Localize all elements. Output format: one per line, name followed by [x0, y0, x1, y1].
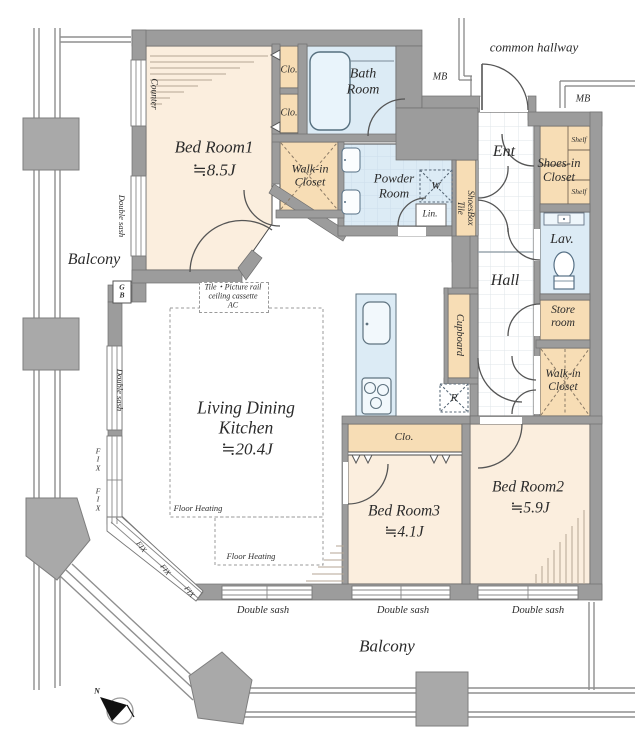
mb-label-1: MB [433, 71, 447, 82]
balcony-left-label: Balcony [68, 251, 120, 269]
shoes-in-closet-label: Shoes-in Closet [537, 156, 580, 184]
gas-box-label: G B [119, 284, 124, 301]
ldk-name-label: Living Dining Kitchen [197, 398, 295, 437]
double-sash-bottom-3: Double sash [512, 605, 564, 617]
linen-label: Lin. [422, 210, 437, 221]
shoesbox-tile-label: ShoesBox Tile [456, 191, 476, 226]
fix-label-2: F I X [96, 487, 101, 512]
clo3-label: Clo. [395, 431, 414, 443]
common-hallway-label: common hallway [490, 41, 578, 56]
counter-label: Counter [148, 78, 159, 109]
clo2-label: Clo. [281, 107, 298, 118]
powder-room-label: Powder Room [374, 171, 414, 200]
double-sash-left-2: Double sash [114, 369, 124, 411]
ceiling-note-label: Tile・Picture rail ceiling cassette AC [205, 284, 262, 311]
double-sash-bottom-2: Double sash [377, 605, 429, 617]
bedroom2-size-label: ≒5.9J [510, 499, 549, 516]
ldk-size-label: ≒20.4J [221, 439, 273, 458]
floor-heating-label-1: Floor Heating [174, 504, 223, 514]
compass [100, 697, 134, 724]
washer-label: W [431, 180, 440, 192]
bedroom2-name-label: Bed Room2 [492, 478, 564, 495]
shelf-label-top: Shelf [572, 136, 587, 144]
bedroom3-name-label: Bed Room3 [368, 502, 440, 519]
mb-label-2: MB [576, 93, 590, 104]
walkin-closet1-label: Walk-in Closet [292, 163, 329, 190]
balcony-bottom-label: Balcony [359, 636, 415, 655]
north-arrow [100, 697, 127, 721]
fix-label-1: F I X [96, 447, 101, 472]
shelf-label-bottom: Shelf [572, 188, 587, 196]
floor-plan: common hallway MB MB Ent Shoes-in Closet… [0, 0, 635, 750]
toilet-tank [554, 276, 574, 289]
store-room-label: Store room [551, 304, 575, 330]
bedroom3-size-label: ≒4.1J [384, 523, 423, 540]
floor-heating-label-2: Floor Heating [227, 552, 276, 562]
bedroom1-size-label: ≒8.5J [192, 160, 235, 179]
fridge-label: R [451, 392, 458, 404]
north-label: N [94, 688, 100, 697]
toilet-bowl [554, 252, 574, 278]
bathtub [310, 52, 350, 130]
clo1-label: Clo. [281, 64, 298, 75]
bath-room-label: Bath Room [347, 66, 380, 97]
double-sash-bottom-1: Double sash [237, 605, 289, 617]
ent-label: Ent [493, 143, 515, 161]
bedroom1-name-label: Bed Room1 [175, 137, 254, 156]
cupboard-label: Cupboard [453, 314, 465, 356]
floor-plan-graphics [0, 0, 635, 750]
lav-label: Lav. [550, 232, 573, 248]
hall-label: Hall [491, 272, 519, 290]
double-sash-left-1: Double sash [116, 195, 126, 237]
walkin-closet2-label: Walk-in Closet [545, 368, 580, 394]
